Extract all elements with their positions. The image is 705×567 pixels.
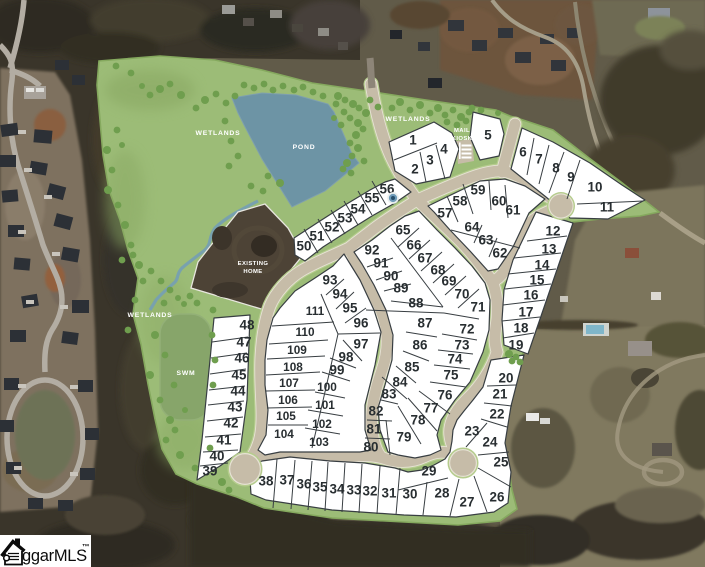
svg-text:9: 9: [567, 170, 574, 185]
svg-text:41: 41: [217, 433, 232, 448]
svg-text:31: 31: [382, 486, 397, 501]
svg-text:109: 109: [287, 343, 307, 357]
svg-text:32: 32: [363, 484, 378, 499]
svg-text:WETLANDS: WETLANDS: [128, 312, 173, 319]
svg-text:77: 77: [424, 401, 439, 416]
svg-text:44: 44: [231, 384, 246, 399]
svg-text:65: 65: [396, 223, 411, 238]
svg-text:51: 51: [310, 229, 325, 244]
svg-text:63: 63: [479, 233, 494, 248]
svg-text:42: 42: [224, 416, 239, 431]
svg-text:62: 62: [493, 246, 508, 261]
svg-text:55: 55: [365, 191, 380, 206]
svg-text:59: 59: [471, 183, 486, 198]
svg-text:111: 111: [306, 304, 325, 318]
svg-text:43: 43: [228, 400, 243, 415]
svg-text:97: 97: [354, 337, 369, 352]
svg-text:™: ™: [82, 542, 90, 551]
svg-text:HOME: HOME: [243, 269, 262, 275]
svg-text:82: 82: [369, 404, 384, 419]
svg-text:106: 106: [278, 393, 298, 407]
svg-text:39: 39: [203, 464, 218, 479]
svg-text:21: 21: [493, 387, 508, 402]
svg-text:18: 18: [514, 321, 529, 336]
svg-text:45: 45: [232, 368, 247, 383]
svg-text:76: 76: [438, 388, 453, 403]
svg-text:3: 3: [426, 153, 433, 168]
svg-text:35: 35: [313, 480, 328, 495]
svg-text:36: 36: [297, 477, 312, 492]
svg-text:5: 5: [484, 128, 492, 143]
svg-text:70: 70: [455, 287, 470, 302]
svg-text:47: 47: [237, 335, 252, 350]
svg-text:64: 64: [465, 220, 480, 235]
svg-text:6: 6: [519, 145, 526, 160]
svg-text:46: 46: [235, 351, 250, 366]
svg-text:92: 92: [365, 243, 380, 258]
svg-text:7: 7: [535, 152, 542, 167]
svg-text:103: 103: [309, 435, 329, 449]
svg-text:WETLANDS: WETLANDS: [196, 130, 241, 137]
svg-text:71: 71: [471, 300, 486, 315]
svg-text:12: 12: [546, 224, 561, 239]
svg-text:11: 11: [600, 200, 615, 215]
svg-text:33: 33: [347, 483, 362, 498]
svg-text:94: 94: [333, 287, 348, 302]
svg-text:23: 23: [465, 424, 480, 439]
svg-text:4: 4: [440, 142, 448, 157]
svg-text:107: 107: [279, 376, 299, 390]
svg-text:ggarMLS: ggarMLS: [22, 547, 87, 565]
svg-text:27: 27: [460, 495, 475, 510]
svg-text:72: 72: [460, 322, 475, 337]
svg-text:73: 73: [455, 338, 470, 353]
svg-text:96: 96: [354, 316, 369, 331]
svg-text:POND: POND: [293, 144, 316, 151]
svg-text:95: 95: [343, 301, 358, 316]
svg-text:30: 30: [403, 487, 418, 502]
svg-text:29: 29: [422, 464, 437, 479]
svg-text:80: 80: [364, 440, 379, 455]
svg-text:101: 101: [315, 398, 335, 412]
svg-text:20: 20: [499, 371, 514, 386]
svg-text:KIOSK: KIOSK: [452, 136, 473, 142]
svg-text:61: 61: [506, 203, 521, 218]
svg-text:108: 108: [283, 360, 303, 374]
svg-text:17: 17: [519, 305, 534, 320]
svg-text:EXISTING: EXISTING: [238, 261, 269, 267]
svg-text:110: 110: [295, 325, 314, 339]
svg-text:48: 48: [240, 318, 255, 333]
svg-text:60: 60: [492, 194, 507, 209]
svg-text:78: 78: [411, 413, 426, 428]
svg-text:2: 2: [411, 162, 418, 177]
svg-text:84: 84: [393, 375, 408, 390]
svg-text:MAIL: MAIL: [454, 128, 470, 134]
svg-text:86: 86: [413, 338, 428, 353]
svg-text:19: 19: [509, 338, 524, 353]
svg-text:88: 88: [409, 296, 424, 311]
svg-text:28: 28: [435, 486, 450, 501]
svg-text:22: 22: [490, 407, 505, 422]
svg-text:102: 102: [312, 417, 332, 431]
svg-text:34: 34: [330, 482, 345, 497]
svg-text:26: 26: [490, 490, 505, 505]
svg-text:81: 81: [367, 422, 382, 437]
svg-text:14: 14: [535, 258, 550, 273]
svg-text:75: 75: [444, 368, 459, 383]
svg-text:85: 85: [405, 360, 420, 375]
svg-text:87: 87: [418, 316, 433, 331]
svg-text:SWM: SWM: [176, 370, 195, 377]
svg-text:57: 57: [438, 206, 453, 221]
svg-text:93: 93: [323, 273, 338, 288]
svg-text:90: 90: [384, 269, 399, 284]
svg-text:1: 1: [409, 133, 417, 148]
svg-text:16: 16: [524, 288, 539, 303]
svg-text:10: 10: [588, 180, 603, 195]
svg-text:37: 37: [280, 473, 295, 488]
svg-text:WETLANDS: WETLANDS: [386, 116, 431, 123]
svg-text:79: 79: [397, 430, 412, 445]
svg-text:58: 58: [453, 194, 468, 209]
svg-text:15: 15: [530, 273, 545, 288]
svg-text:25: 25: [494, 455, 509, 470]
svg-text:105: 105: [276, 409, 296, 423]
svg-text:13: 13: [542, 242, 557, 257]
svg-text:91: 91: [374, 256, 389, 271]
svg-text:104: 104: [274, 427, 294, 441]
svg-text:38: 38: [259, 474, 274, 489]
svg-text:24: 24: [483, 435, 498, 450]
svg-text:99: 99: [330, 363, 345, 378]
svg-text:8: 8: [552, 161, 560, 176]
svg-text:74: 74: [448, 352, 463, 367]
svg-text:100: 100: [317, 380, 337, 394]
